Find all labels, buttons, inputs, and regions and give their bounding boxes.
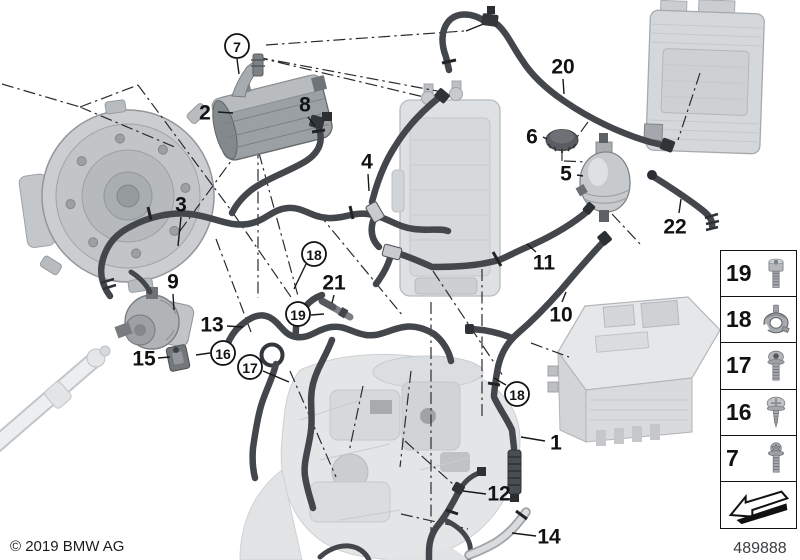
callout-1[interactable]: 1 [521, 432, 562, 455]
part-6-cap[interactable] [546, 130, 578, 154]
part-21-sensor[interactable] [322, 301, 350, 318]
power-electronics-top [644, 0, 765, 154]
callout-15[interactable]: 15 [132, 348, 170, 371]
svg-text:19: 19 [290, 307, 306, 323]
svg-text:1: 1 [550, 432, 562, 455]
svg-text:14: 14 [537, 526, 561, 549]
power-electronics-bottom [548, 297, 720, 446]
legend-item-19[interactable]: 19 [721, 251, 796, 297]
legend-item-16[interactable]: 16 [721, 390, 796, 436]
svg-text:20: 20 [551, 56, 574, 79]
callout-circle-16[interactable]: 16 [196, 341, 235, 365]
drive-shaft [0, 346, 110, 448]
part-9-water-pump[interactable] [114, 287, 195, 349]
callout-4[interactable]: 4 [361, 151, 373, 192]
clamp-icon [759, 300, 793, 340]
svg-text:5: 5 [560, 163, 572, 186]
legend-number: 19 [726, 260, 754, 287]
cooling-hoses-diagram: 2843913152120651110221121471819161718 [0, 0, 800, 560]
callout-11[interactable]: 11 [527, 244, 555, 275]
pan-screw-icon [759, 392, 793, 432]
copyright-text: © 2019 BMW AG [10, 538, 124, 555]
callout-circle-19[interactable]: 19 [286, 302, 324, 326]
legend-item-7[interactable]: 7 [721, 436, 796, 482]
fasteners-legend: 191817167 [720, 250, 797, 529]
callout-14[interactable]: 14 [512, 526, 561, 549]
direction-arrow-icon [726, 485, 792, 525]
svg-text:10: 10 [549, 304, 572, 327]
callout-6[interactable]: 6 [526, 126, 547, 149]
svg-text:22: 22 [663, 216, 686, 239]
svg-text:12: 12 [487, 483, 510, 506]
svg-text:11: 11 [533, 252, 556, 275]
callout-20[interactable]: 20 [551, 56, 574, 95]
svg-text:17: 17 [242, 360, 258, 376]
svg-text:3: 3 [175, 194, 187, 217]
legend-number: 16 [726, 399, 754, 426]
svg-text:7: 7 [233, 39, 241, 55]
diagram-part-number: 489888 [722, 540, 798, 558]
callout-circle-7[interactable]: 7 [225, 34, 249, 74]
legend-number: 18 [726, 306, 754, 333]
legend-number: 7 [726, 445, 754, 472]
legend-item-18[interactable]: 18 [721, 297, 796, 343]
svg-text:18: 18 [509, 387, 525, 403]
callout-22[interactable]: 22 [663, 199, 686, 239]
svg-text:9: 9 [167, 271, 179, 294]
svg-text:8: 8 [299, 94, 311, 117]
callout-21[interactable]: 21 [322, 272, 346, 304]
engine-transmission [240, 354, 520, 560]
legend-arrow-cell [721, 482, 796, 528]
torx-screw-icon [759, 438, 793, 478]
legend-number: 17 [726, 352, 754, 379]
callout-circle-18[interactable]: 18 [294, 242, 326, 289]
svg-text:21: 21 [322, 272, 346, 295]
svg-text:2: 2 [199, 102, 211, 125]
svg-text:15: 15 [132, 348, 156, 371]
svg-text:4: 4 [361, 151, 373, 174]
parts-diagram-page: 2843913152120651110221121471819161718 19… [0, 0, 800, 560]
svg-text:13: 13 [200, 314, 223, 337]
legend-item-17[interactable]: 17 [721, 343, 796, 389]
dome-screw-icon [759, 346, 793, 386]
svg-text:6: 6 [526, 126, 538, 149]
svg-text:18: 18 [306, 247, 322, 263]
part-15-bracket[interactable] [166, 344, 191, 372]
svg-text:16: 16 [215, 346, 231, 362]
cap-screw-icon [759, 254, 793, 294]
